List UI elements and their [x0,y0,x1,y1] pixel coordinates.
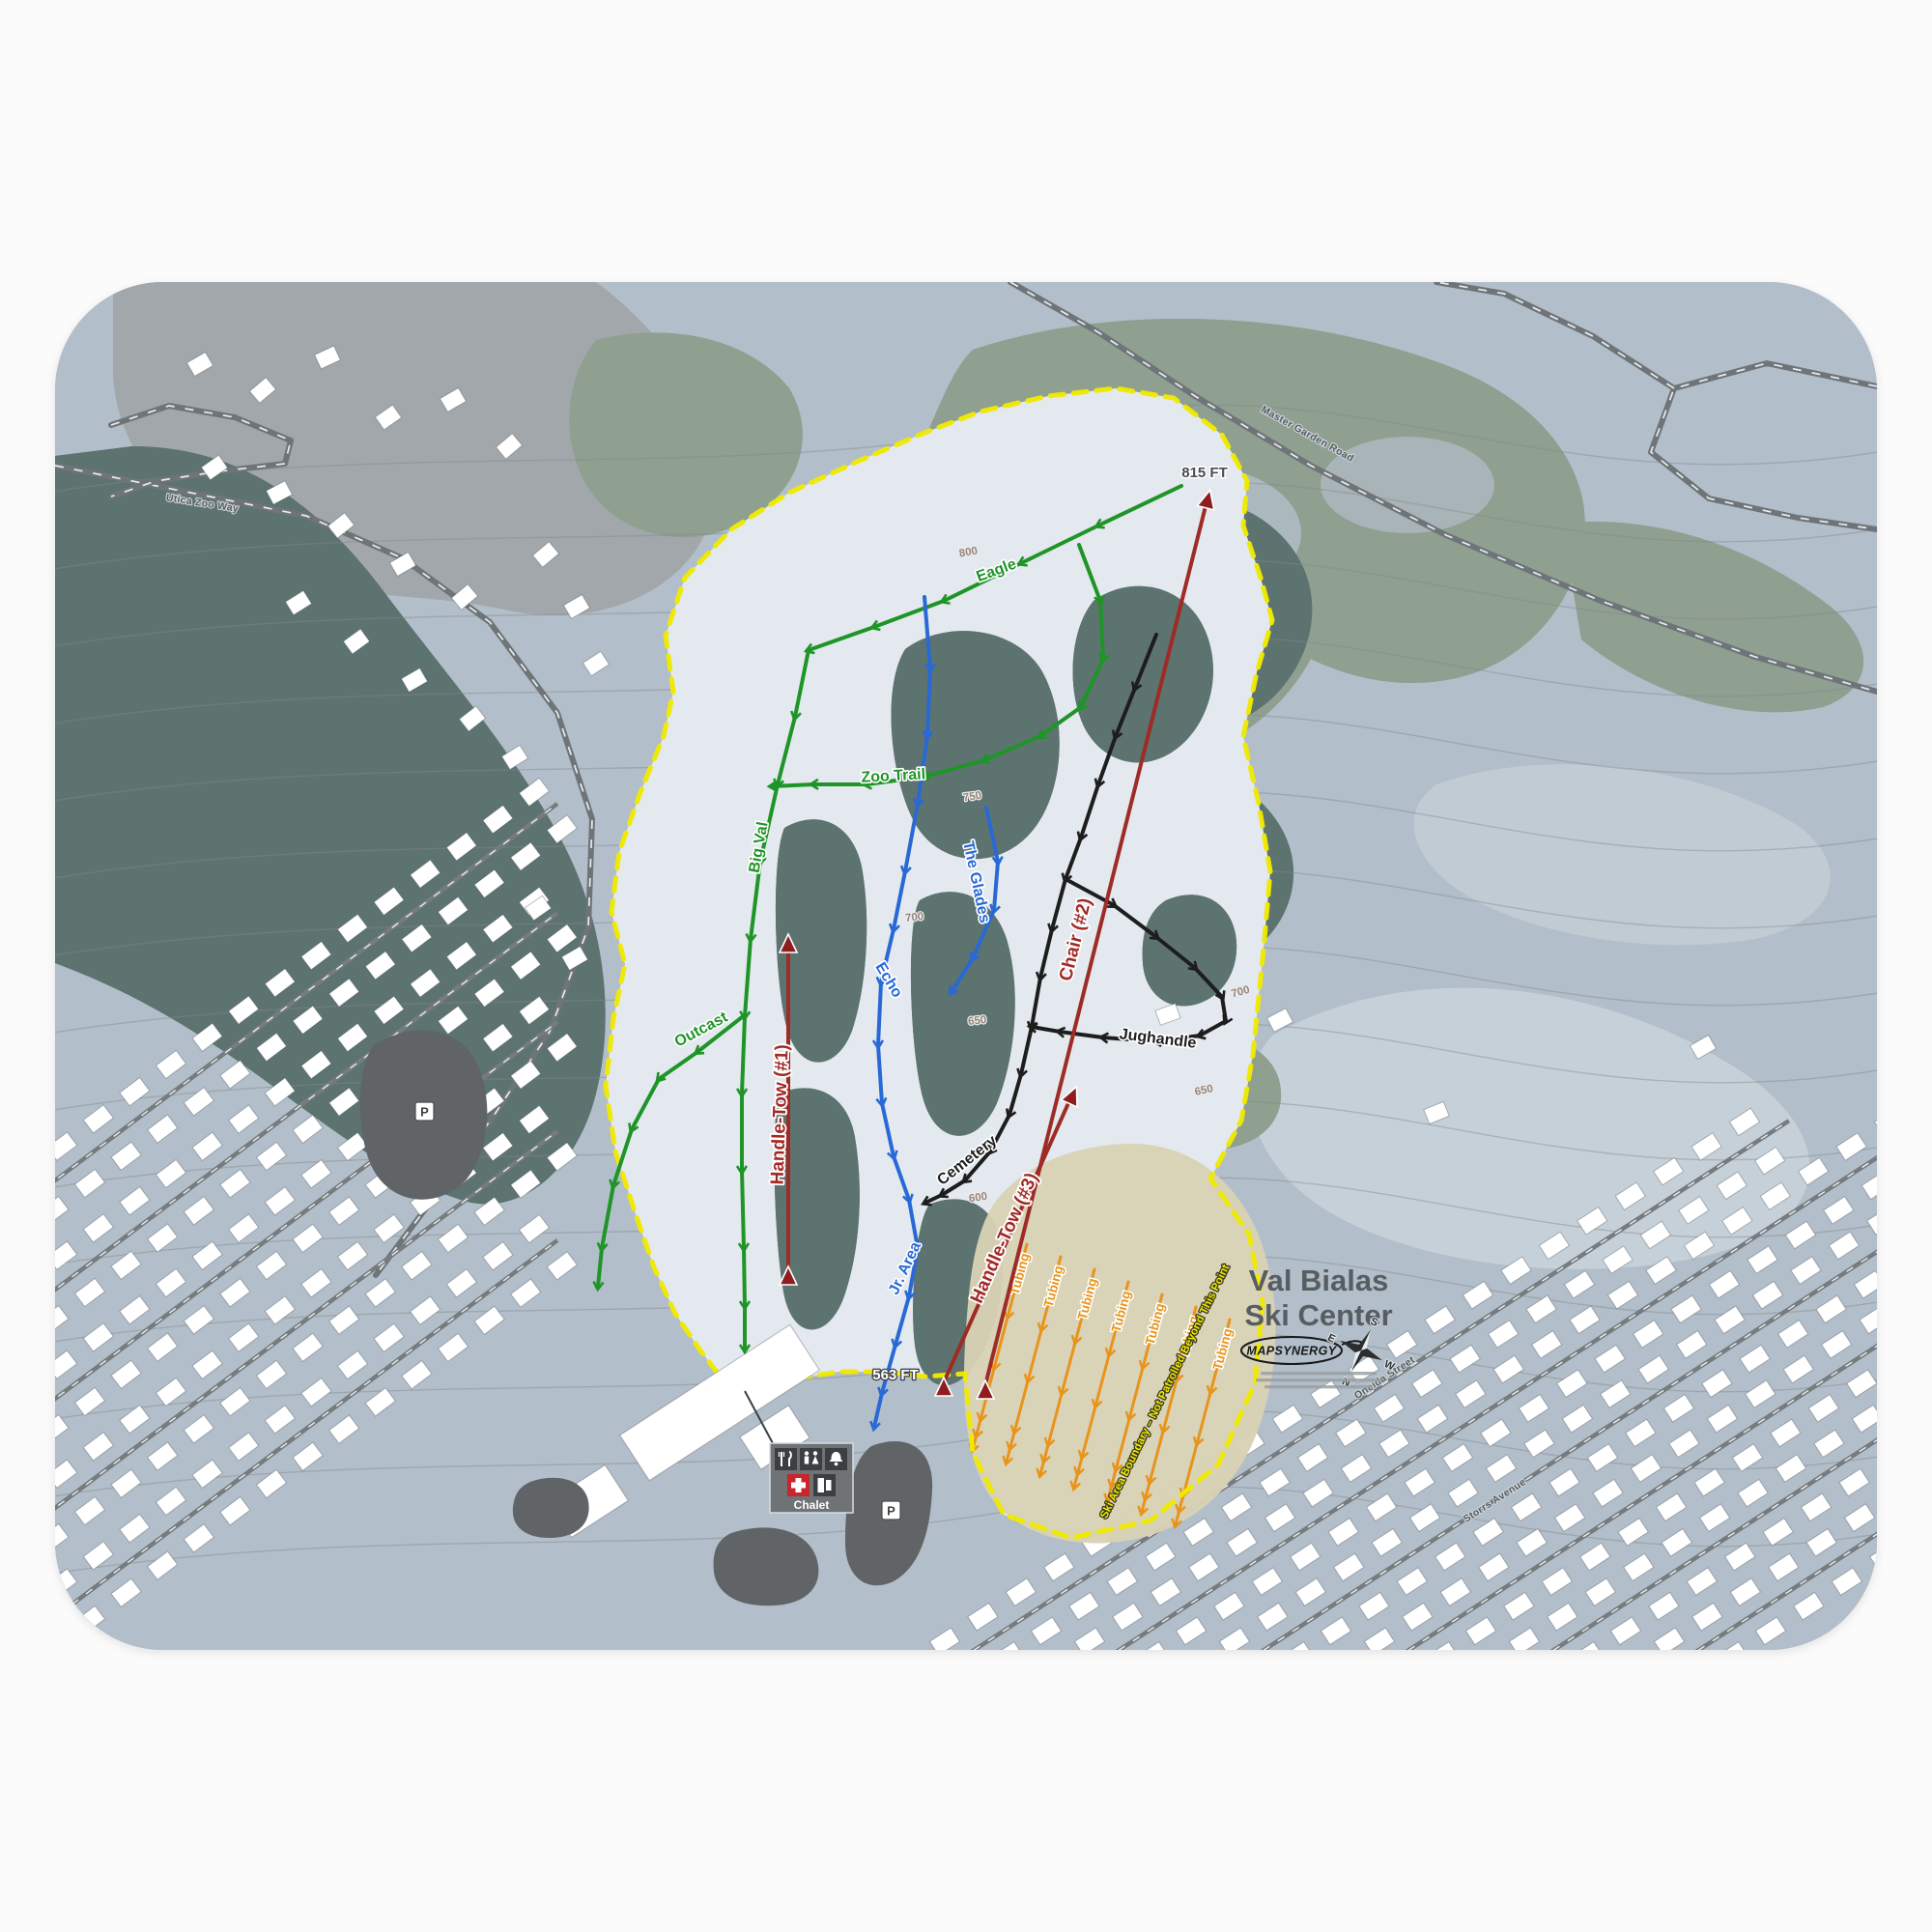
chalet-label: Chalet [794,1498,830,1512]
logo-text: MAPSYNERGY [1247,1345,1338,1358]
summit-elevation: 815 FT [1181,465,1228,481]
chalet-services-callout: Chalet [770,1443,853,1513]
ski-map-blanket: TubingTubingTubingTubingTubingTubingTubi… [55,282,1877,1650]
restrooms-icon [800,1448,822,1470]
bell-icon [825,1448,847,1470]
parking-label: P [420,1105,429,1120]
food-icon [775,1448,797,1470]
parking-label: P [887,1504,895,1519]
trail-map: TubingTubingTubingTubingTubingTubingTubi… [55,282,1877,1650]
parking-marker: P [882,1501,900,1520]
first-aid-icon [787,1474,810,1496]
product-photo-background: TubingTubingTubingTubingTubingTubingTubi… [0,0,1932,1932]
fine-print [1256,1372,1381,1388]
contour-label: 700 [905,911,924,924]
rentals-icon [813,1474,836,1496]
trail-label-zoo-trail: Zoo Trail [861,766,925,785]
parking-marker: P [415,1102,434,1121]
base-elevation: 563 FT [872,1367,919,1383]
map-title-line1: Val Bialas [1249,1264,1389,1297]
contour-label: 650 [968,1014,987,1028]
